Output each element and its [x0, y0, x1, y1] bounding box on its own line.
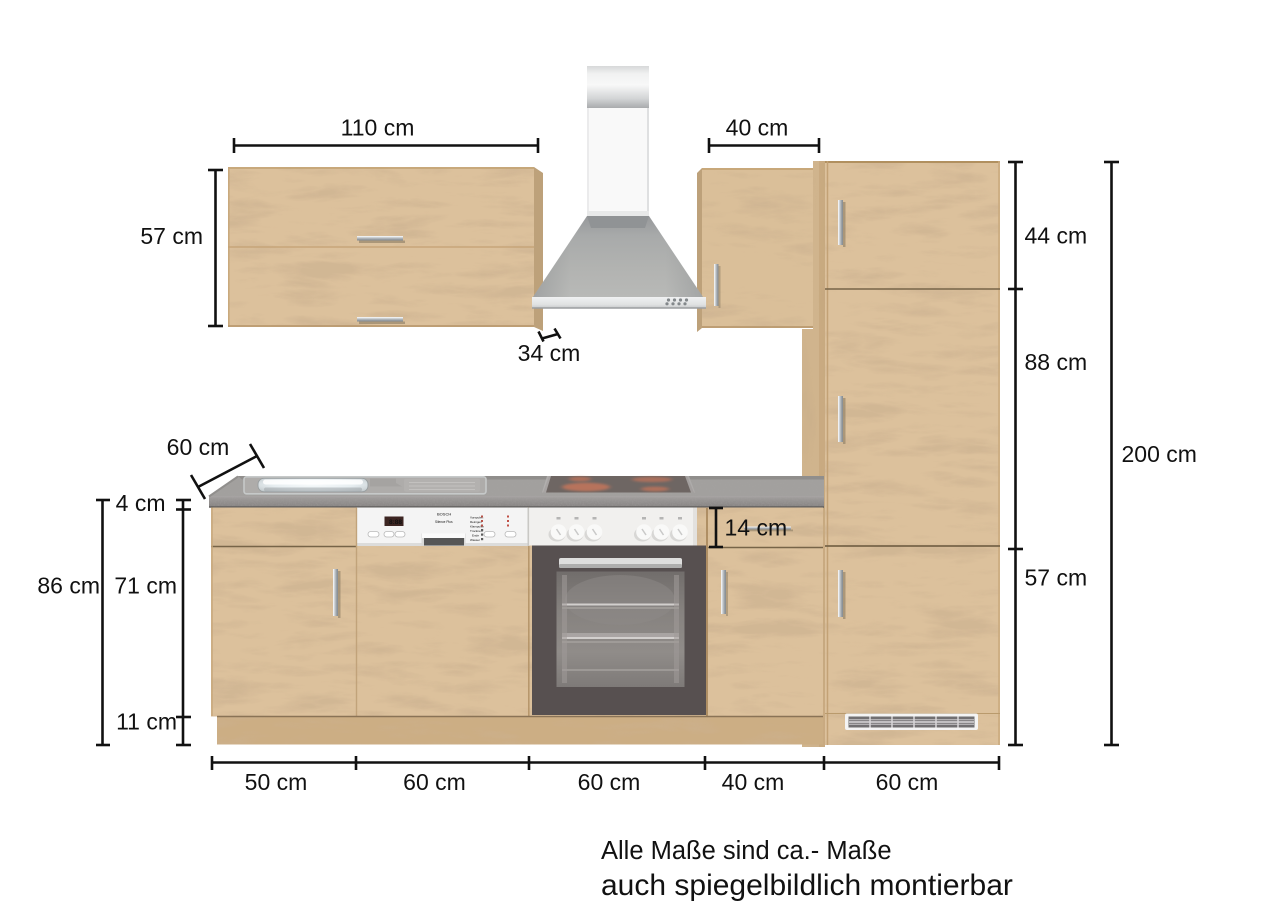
svg-text:8:88: 8:88 [389, 519, 402, 526]
svg-text:60 cm: 60 cm [578, 769, 641, 795]
svg-text:Alle Maße sind ca.- Maße: Alle Maße sind ca.- Maße [601, 837, 892, 865]
svg-text:auch spiegelbildlich montierba: auch spiegelbildlich montierbar [601, 869, 1013, 902]
svg-text:Silence Plus: Silence Plus [435, 520, 453, 524]
svg-text:BOSCH: BOSCH [437, 512, 451, 517]
svg-text:40 cm: 40 cm [722, 769, 785, 795]
svg-text:Reinigen: Reinigen [470, 520, 482, 524]
svg-text:60 cm: 60 cm [167, 434, 230, 460]
svg-text:110 cm: 110 cm [341, 115, 415, 141]
svg-text:57 cm: 57 cm [1025, 565, 1088, 591]
svg-text:40 cm: 40 cm [726, 115, 789, 141]
svg-text:44 cm: 44 cm [1025, 223, 1088, 249]
svg-text:71 cm: 71 cm [114, 573, 177, 599]
svg-text:57 cm: 57 cm [140, 223, 203, 249]
svg-text:60 cm: 60 cm [876, 769, 939, 795]
svg-text:34 cm: 34 cm [518, 340, 581, 366]
svg-text:86 cm: 86 cm [37, 573, 100, 599]
svg-text:11 cm: 11 cm [116, 709, 177, 735]
svg-text:50 cm: 50 cm [245, 769, 308, 795]
svg-text:Trocknen: Trocknen [470, 529, 483, 533]
svg-text:88 cm: 88 cm [1025, 349, 1088, 375]
svg-text:4 cm: 4 cm [116, 490, 166, 516]
svg-text:200 cm: 200 cm [1122, 441, 1197, 467]
svg-text:60 cm: 60 cm [403, 769, 466, 795]
svg-text:Ende: Ende [472, 534, 479, 538]
svg-text:Wasser: Wasser [470, 538, 480, 542]
svg-text:14 cm: 14 cm [725, 515, 788, 541]
